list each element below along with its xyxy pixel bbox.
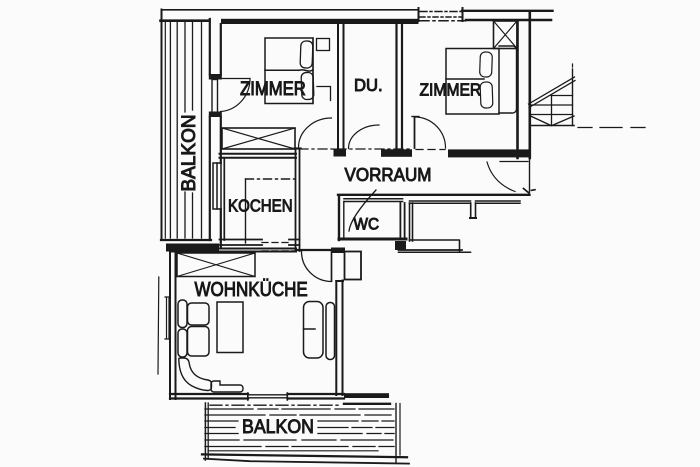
svg-text:WOHNKÜCHE: WOHNKÜCHE (195, 278, 308, 301)
svg-text:ZIMMER: ZIMMER (420, 79, 482, 99)
svg-text:WC: WC (354, 216, 380, 234)
svg-text:VORRAUM: VORRAUM (345, 164, 432, 185)
svg-text:DU.: DU. (354, 76, 383, 95)
svg-text:BALKON: BALKON (179, 114, 200, 191)
svg-text:BALKON: BALKON (242, 415, 314, 437)
svg-text:KOCHEN: KOCHEN (228, 195, 293, 216)
svg-text:ZIMMER: ZIMMER (240, 78, 306, 99)
